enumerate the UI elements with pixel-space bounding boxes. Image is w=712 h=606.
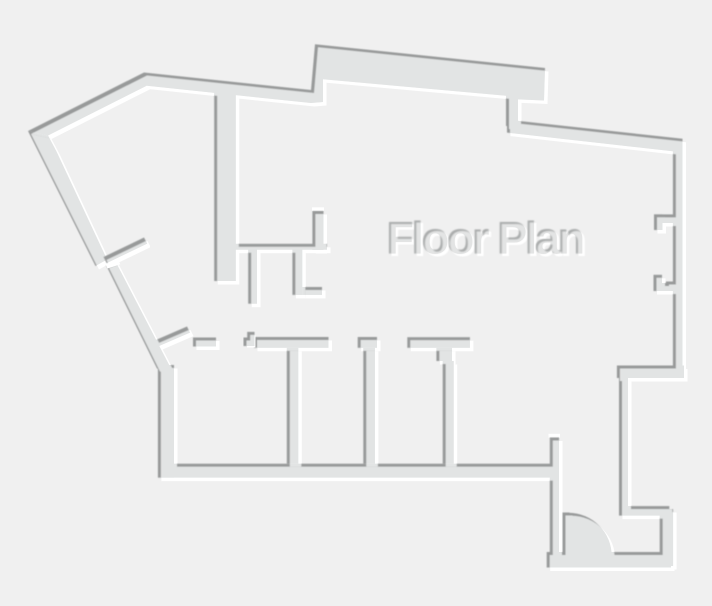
svg-text:Floor Plan: Floor Plan (386, 213, 585, 264)
